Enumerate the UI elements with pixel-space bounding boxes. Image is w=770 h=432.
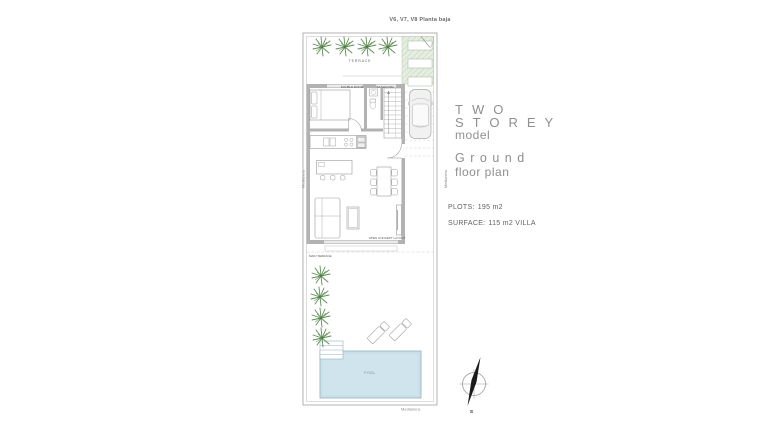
pool-steps [320,341,343,359]
double-room [310,90,350,120]
compass-south-label: S [470,409,474,415]
plan-title: Ground [455,151,530,165]
party-wall-right-label: Medianera [444,169,448,188]
open-concept-label: OPEN CONCEPT LAYOUT [369,236,406,240]
door-threshold [325,246,397,251]
bathroom-label: BATHROOM [376,85,394,89]
palm-tree-icon [358,37,376,56]
bathroom-fixtures [370,89,378,109]
dining-table [377,167,391,196]
kitchen [310,136,366,181]
main-terrace-label: MAIN TERRACE [309,254,332,258]
stairs [384,88,402,138]
compass: S [460,357,489,415]
dining-set [371,167,397,196]
palm-tree-icon [379,37,397,56]
kitchen-sink [324,138,330,146]
palm-tree-icon [312,266,330,285]
info-panel: TWO STOREY model Ground floor plan PLOTS… [455,96,585,241]
surface-label: SURFACE: [448,220,485,227]
sofa [315,198,340,238]
palm-tree-icon [311,287,329,306]
pool-label: POOL [364,371,376,375]
pool [320,341,421,398]
model-subtitle: model [455,128,490,142]
living-room [315,198,402,238]
plots-value: 195 m2 [478,204,503,211]
double-room-label: DOUBLE ROOM [341,85,364,89]
sun-lounger [389,318,412,341]
floor-plan-drawing: S TERRACE DOUBLE ROOM BATHROOM OPEN CONC… [0,0,770,432]
pillow [312,106,318,118]
surface-spec: SURFACE:115 m2 VILLA [448,220,536,227]
pillow [312,92,318,104]
garden-area [402,37,434,87]
car [408,90,433,139]
sun-lounger [367,321,390,344]
stools [321,176,346,181]
party-wall-left-label: Medianera [302,169,306,188]
terrace-label: TERRACE [349,59,372,63]
palm-tree-icon [313,37,331,56]
plan-subtitle: floor plan [455,165,509,179]
party-wall-bottom-label: Medianera [401,407,421,412]
floor-plan-page: V6, V7, V8 Planta baja [0,0,770,432]
compass-needle [468,357,481,406]
plots-label: PLOTS: [448,204,475,211]
palm-tree-icon [336,37,354,56]
surface-value: 115 m2 VILLA [488,220,535,227]
sun-loungers [367,318,412,344]
palm-tree-icon [312,308,330,327]
plots-spec: PLOTS:195 m2 [448,204,503,211]
